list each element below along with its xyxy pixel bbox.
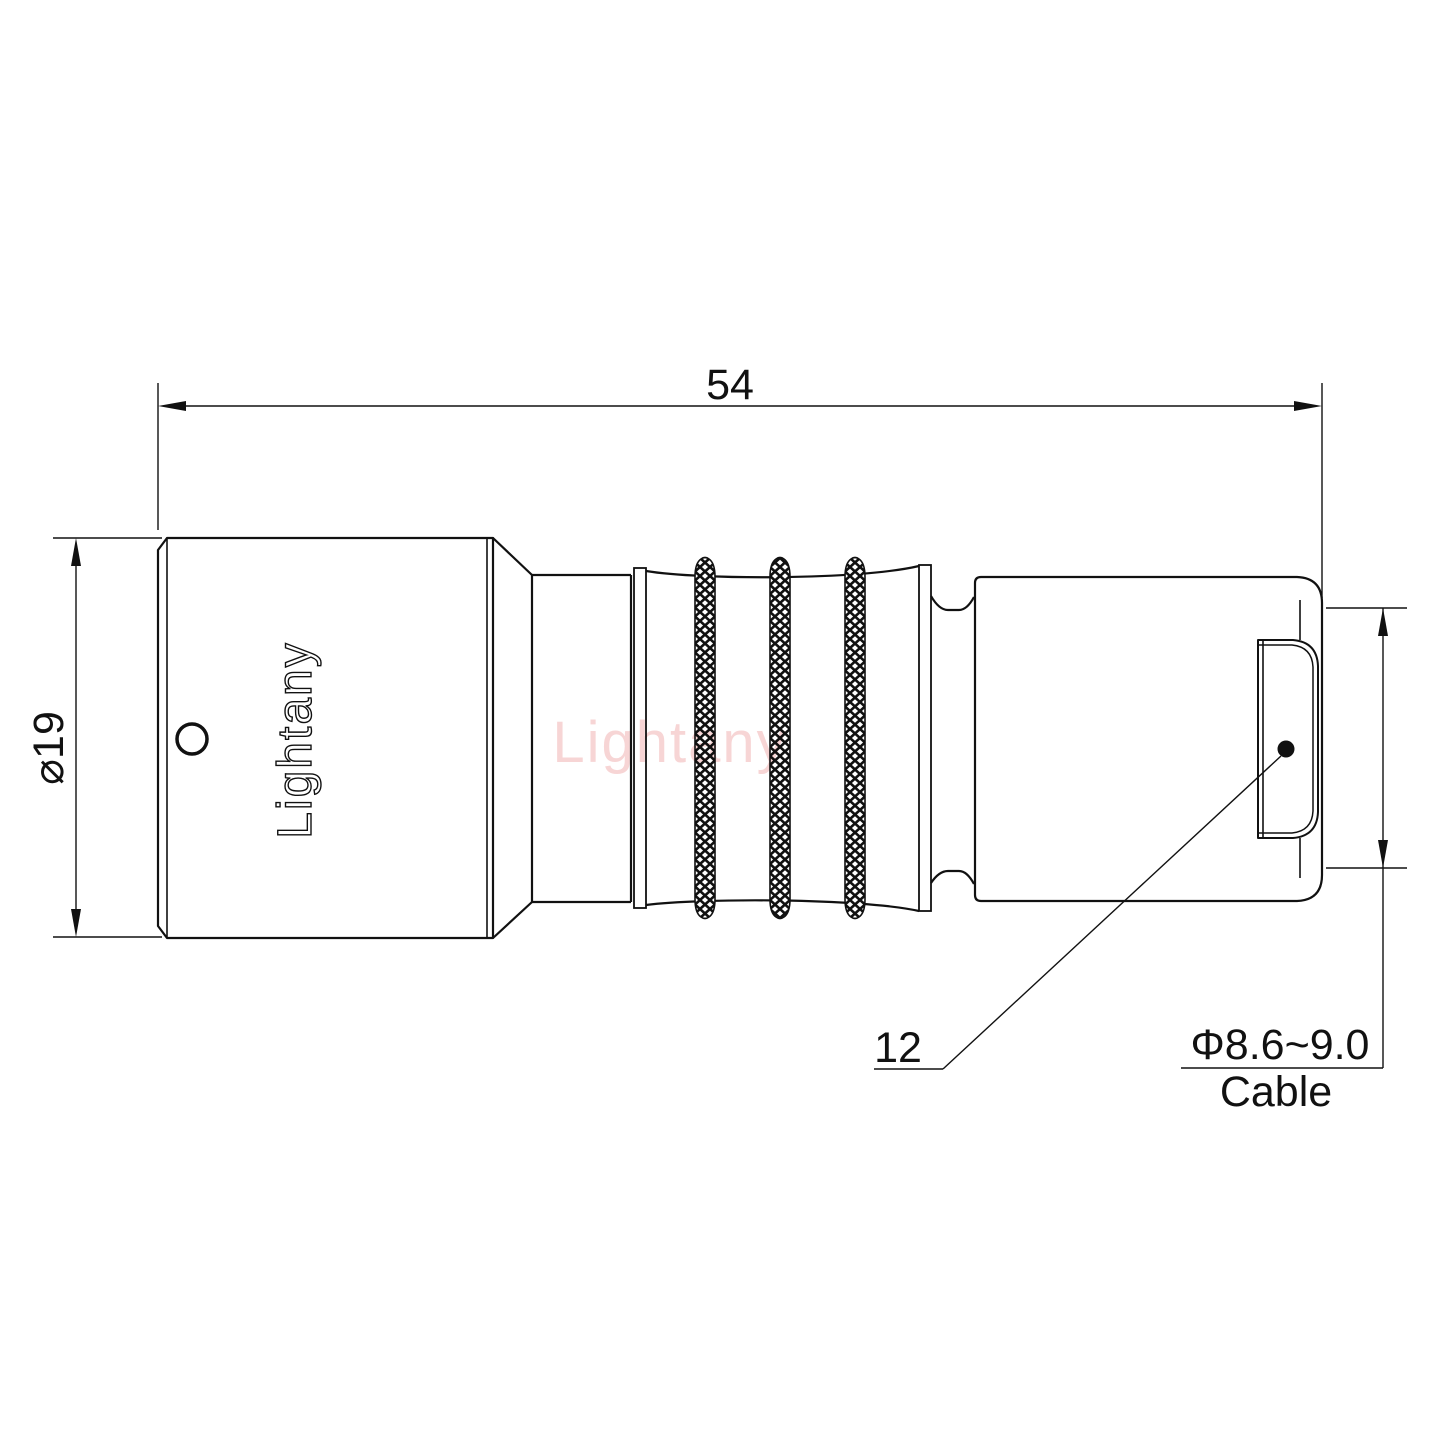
taper-bottom-edge: [493, 902, 532, 938]
leader-dot: [1278, 741, 1295, 758]
arrowhead-bottom: [1378, 840, 1388, 868]
overall-length-value: 54: [706, 361, 754, 409]
bushing-ref-value: 12: [874, 1024, 922, 1072]
neck-groove: [931, 596, 974, 884]
neck-bottom-edge: [931, 871, 974, 884]
arrowhead-left: [158, 401, 186, 411]
cable-word-label: Cable: [1220, 1068, 1332, 1116]
watermark-text: Lightany: [552, 710, 787, 775]
neck-top-edge: [931, 596, 974, 610]
arrowhead-bottom: [71, 909, 81, 937]
knurl-ring-3: [845, 558, 865, 919]
outer-diameter-value: ⌀19: [25, 711, 73, 785]
cable-range-value: Φ8.6~9.0: [1191, 1021, 1370, 1069]
diameter-dimension: ⌀19: [25, 538, 162, 937]
arrowhead-right: [1294, 401, 1322, 411]
arrowhead-top: [1378, 608, 1388, 636]
cable-bushing-outer: [1258, 640, 1318, 838]
mounting-hole: [177, 724, 207, 754]
embossed-brand-text: Lightany: [269, 641, 322, 838]
taper-section: [493, 538, 532, 938]
connector-left-body: Lightany: [158, 538, 493, 938]
connector-right-body: [975, 577, 1322, 901]
connector-technical-drawing: 54 ⌀19 Lightany: [0, 0, 1440, 1440]
knurl-end-ring: [919, 565, 931, 911]
taper-top-edge: [493, 538, 532, 575]
technical-drawing-page: 54 ⌀19 Lightany: [0, 0, 1440, 1440]
arrowhead-top: [71, 538, 81, 566]
